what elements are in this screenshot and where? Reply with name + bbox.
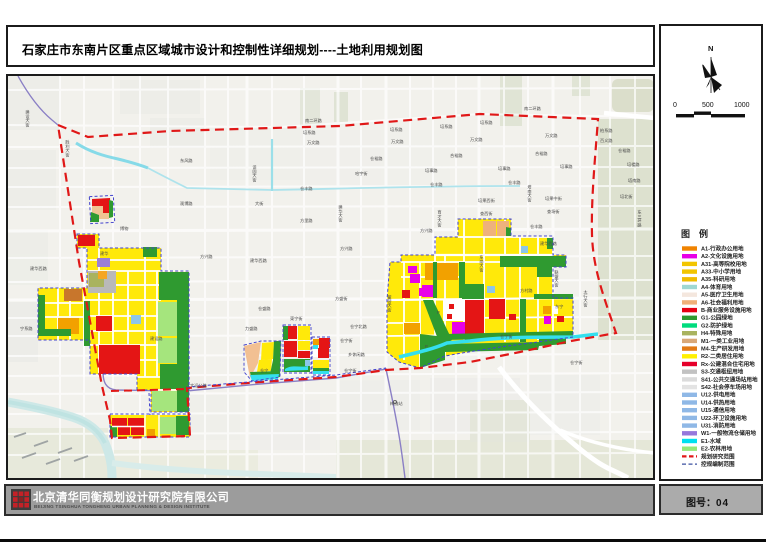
svg-text:E1-水域: E1-水域 — [701, 437, 721, 445]
svg-text:建华: 建华 — [100, 250, 108, 257]
svg-text:谈固大街: 谈固大街 — [252, 164, 258, 184]
svg-text:0: 0 — [673, 102, 677, 109]
svg-text:S41-公共交通场站用地: S41-公共交通场站用地 — [701, 375, 758, 383]
svg-text:培事路: 培事路 — [560, 163, 573, 170]
svg-text:控规编制范围: 控规编制范围 — [701, 460, 735, 468]
svg-text:A6-社会福利用地: A6-社会福利用地 — [701, 298, 744, 306]
svg-text:培楼路: 培楼路 — [627, 161, 640, 168]
svg-text:万文路: 万文路 — [470, 136, 483, 143]
svg-text:培果中街: 培果中街 — [545, 195, 562, 202]
svg-text:A4-体育用地: A4-体育用地 — [701, 283, 733, 291]
svg-text:建设大街: 建设大街 — [25, 109, 31, 129]
svg-text:A1-行政办公用地: A1-行政办公用地 — [701, 244, 744, 252]
svg-text:东宁: 东宁 — [555, 303, 563, 309]
svg-text:S42-社会停车场用地: S42-社会停车场用地 — [701, 383, 752, 391]
svg-text:H4-特殊用地: H4-特殊用地 — [701, 329, 733, 337]
svg-text:A2-文化设施用地: A2-文化设施用地 — [701, 252, 744, 260]
svg-text:培事路: 培事路 — [425, 167, 438, 174]
svg-text:胜利大街: 胜利大街 — [65, 139, 71, 159]
svg-text:500: 500 — [702, 102, 714, 109]
svg-text:P: P — [437, 310, 440, 315]
svg-text:U12-供电用地: U12-供电用地 — [701, 391, 736, 399]
svg-text:塔南路: 塔南路 — [628, 177, 641, 184]
svg-text:柏系路: 柏系路 — [600, 127, 613, 134]
svg-text:A35-科研用地: A35-科研用地 — [701, 275, 736, 283]
svg-text:育才大街: 育才大街 — [438, 209, 443, 229]
svg-text:M4-生产研发用地: M4-生产研发用地 — [701, 345, 745, 353]
svg-text:力盛路: 力盛路 — [245, 325, 258, 332]
svg-text:观博路: 观博路 — [180, 200, 193, 207]
svg-text:U15-通信用地: U15-通信用地 — [701, 406, 736, 414]
svg-text:方里路: 方里路 — [300, 217, 313, 224]
svg-text:仓宁街: 仓宁街 — [340, 337, 353, 344]
svg-text:万文路: 万文路 — [391, 138, 404, 145]
svg-text:塔南大街: 塔南大街 — [527, 184, 533, 204]
svg-text:培系路: 培系路 — [390, 126, 403, 133]
svg-text:1000: 1000 — [734, 102, 750, 109]
svg-text:Rx-公建混合住宅用地: Rx-公建混合住宅用地 — [701, 360, 755, 368]
svg-text:培北街: 培北街 — [620, 193, 633, 200]
svg-text:仓盛路: 仓盛路 — [258, 305, 271, 312]
svg-text:培系路: 培系路 — [303, 129, 316, 136]
svg-text:万文路: 万文路 — [307, 139, 320, 146]
svg-text:W1-一般物流仓储用地: W1-一般物流仓储用地 — [701, 429, 756, 437]
svg-text:P: P — [425, 344, 428, 349]
svg-text:规划研究范围: 规划研究范围 — [701, 452, 735, 460]
svg-text:仓宁街: 仓宁街 — [570, 359, 583, 366]
svg-text:查场街: 查场街 — [547, 208, 560, 215]
svg-text:东岗大街: 东岗大街 — [480, 254, 485, 274]
svg-text:仓宁街: 仓宁街 — [344, 367, 357, 374]
svg-text:乡休闲路: 乡休闲路 — [348, 351, 366, 358]
svg-text:方兴路: 方兴路 — [420, 227, 433, 234]
svg-text:宁系路: 宁系路 — [20, 325, 33, 332]
svg-text:图例: 图例 — [681, 228, 717, 239]
svg-text:仓裕路: 仓裕路 — [618, 147, 631, 154]
svg-text:仓裕路: 仓裕路 — [370, 155, 383, 162]
svg-text:R2-二类居住用地: R2-二类居住用地 — [701, 352, 744, 360]
svg-text:建华西路: 建华西路 — [540, 240, 558, 247]
svg-text:太行大街: 太行大街 — [583, 289, 589, 309]
svg-text:G2-防护绿地: G2-防护绿地 — [701, 321, 733, 329]
svg-text:哈宇街: 哈宇街 — [355, 170, 368, 177]
svg-text:大运公路: 大运公路 — [190, 382, 208, 389]
svg-text:仓丰路: 仓丰路 — [300, 185, 313, 192]
svg-text:万文路: 万文路 — [545, 132, 558, 139]
svg-text:方盛街: 方盛街 — [335, 295, 348, 302]
svg-text:方村路: 方村路 — [520, 287, 533, 294]
svg-text:A31-高等院校用地: A31-高等院校用地 — [701, 260, 747, 268]
svg-text:U31-消防用地: U31-消防用地 — [701, 422, 736, 430]
svg-text:方兴路: 方兴路 — [200, 253, 213, 260]
svg-text:N: N — [708, 44, 713, 53]
svg-text:培果西街: 培果西街 — [478, 197, 495, 204]
svg-text:仓宁: 仓宁 — [260, 367, 268, 373]
svg-text:仓丰路: 仓丰路 — [430, 181, 443, 188]
svg-text:建华大街: 建华大街 — [338, 204, 344, 224]
svg-text:查西街: 查西街 — [480, 210, 493, 217]
svg-text:翟营大街: 翟营大街 — [388, 295, 393, 314]
svg-text:大街: 大街 — [255, 200, 263, 207]
svg-text:百义路: 百义路 — [600, 137, 613, 144]
svg-text:仓宁北路: 仓宁北路 — [350, 323, 368, 330]
svg-text:南二环路: 南二环路 — [524, 105, 542, 112]
svg-text:培系路: 培系路 — [480, 119, 493, 126]
svg-text:建华西路: 建华西路 — [30, 265, 48, 272]
svg-text:博物: 博物 — [120, 225, 128, 232]
svg-text:合裕路: 合裕路 — [450, 152, 463, 159]
svg-text:G1-公园绿地: G1-公园绿地 — [701, 314, 733, 322]
svg-text:东风路: 东风路 — [180, 157, 193, 164]
svg-text:E2-农林用地: E2-农林用地 — [701, 445, 732, 453]
svg-text:U22-环卫设施用地: U22-环卫设施用地 — [701, 414, 747, 422]
svg-text:联盟大街: 联盟大街 — [554, 269, 560, 289]
svg-text:S3-交通枢纽用地: S3-交通枢纽用地 — [701, 368, 744, 376]
svg-text:U14-供热用地: U14-供热用地 — [701, 398, 736, 406]
svg-text:建设路: 建设路 — [150, 335, 163, 342]
svg-text:仓丰路: 仓丰路 — [530, 223, 543, 230]
svg-text:A33-中小学用地: A33-中小学用地 — [701, 268, 741, 276]
svg-text:培事路: 培事路 — [498, 165, 511, 172]
svg-text:方兴路: 方兴路 — [340, 245, 353, 252]
svg-text:仓宁街: 仓宁街 — [500, 333, 513, 340]
svg-text:东三环路: 东三环路 — [637, 209, 643, 229]
svg-text:南二环路: 南二环路 — [305, 117, 323, 124]
svg-text:合裕路: 合裕路 — [535, 150, 548, 157]
svg-text:A5-医疗卫生用地: A5-医疗卫生用地 — [701, 291, 744, 299]
svg-text:建华西路: 建华西路 — [250, 257, 268, 264]
svg-text:仓丰路: 仓丰路 — [508, 179, 521, 186]
svg-text:M1-一类工业用地: M1-一类工业用地 — [701, 337, 745, 345]
svg-text:B-商业服务设施用地: B-商业服务设施用地 — [701, 306, 752, 314]
svg-text:東宁街: 東宁街 — [290, 315, 303, 322]
svg-text:培系路: 培系路 — [440, 123, 453, 130]
